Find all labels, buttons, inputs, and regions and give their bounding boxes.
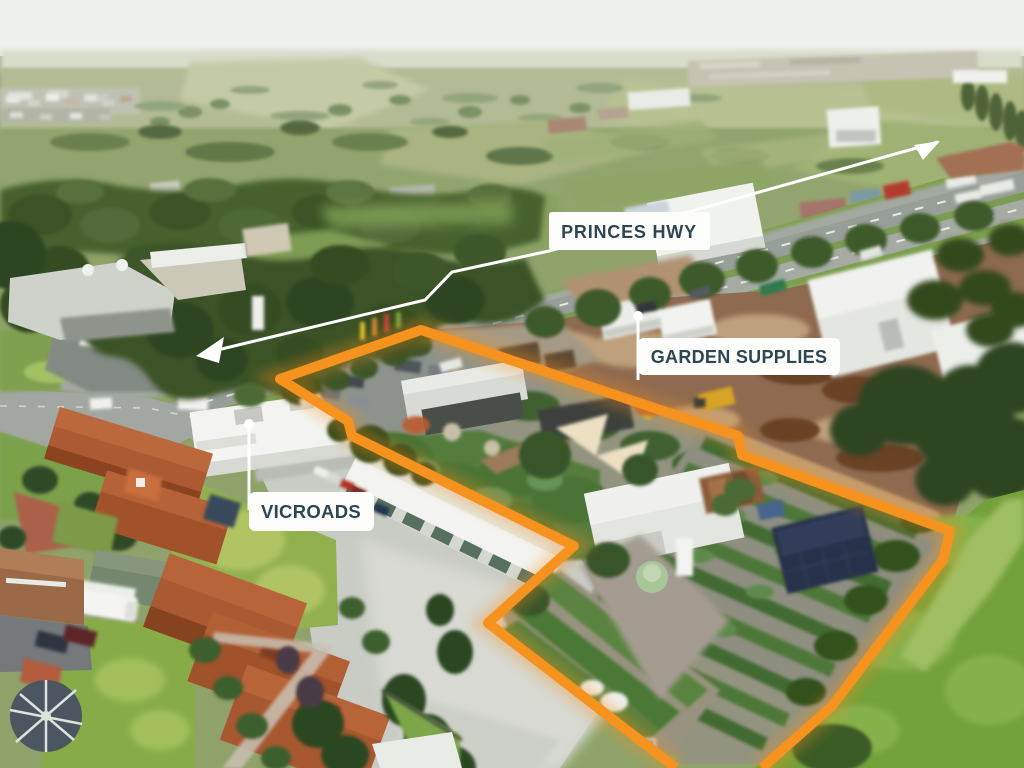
svg-text:PRINCES HWY: PRINCES HWY bbox=[561, 222, 697, 242]
svg-text:GARDEN SUPPLIES: GARDEN SUPPLIES bbox=[651, 347, 828, 367]
svg-text:VICROADS: VICROADS bbox=[261, 501, 361, 522]
